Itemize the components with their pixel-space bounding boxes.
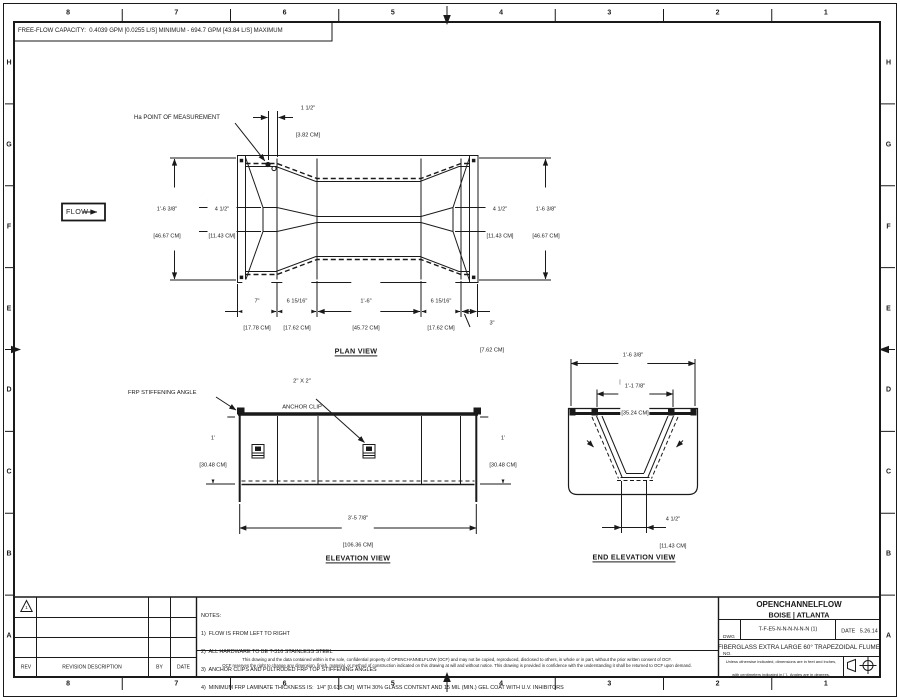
dim-value: 1 1/2"	[296, 105, 320, 114]
dim-elev-height-left: 1' [30.48 CM]	[198, 417, 227, 480]
zone-label: 8	[66, 9, 70, 16]
units-note: Unless otherwise indicated, dimensions a…	[726, 651, 837, 683]
zone-label: D	[6, 387, 11, 394]
anchor-clip-size: 2" X 2"	[282, 377, 322, 386]
note-line: 4) MINIMUM FRP LAMINATE THICKNESS IS: 1/…	[201, 685, 564, 692]
zone-label: 2	[716, 9, 720, 16]
dim-value: 6 15/16"	[283, 298, 310, 307]
rev-header: REV	[21, 665, 31, 670]
dim-value-metric: [7.62 CM]	[480, 347, 504, 356]
dim-plan-left-width: 1'-6 3/8" [46.67 CM]	[152, 188, 181, 251]
dim-plan-left-throat: 4 1/2" [11.43 CM]	[208, 188, 237, 251]
zone-label: 5	[391, 9, 395, 16]
dim-value-metric: [45.72 CM]	[352, 325, 379, 334]
dim-value-metric: [106.36 CM]	[343, 542, 373, 551]
dim-value: 4 1/2"	[660, 516, 687, 525]
by-header: BY	[156, 665, 163, 670]
anchor-clip-label: 2" X 2" ANCHOR CLIP	[282, 360, 322, 420]
dim-end-inner-width: 1'-1 7/8" [35.24 CM]	[620, 365, 649, 428]
dim-value: 1'-1 7/8"	[621, 383, 648, 392]
drawing-linework	[0, 0, 900, 700]
zone-label: D	[886, 387, 891, 394]
zone-label: B	[886, 551, 891, 558]
zone-label: H	[886, 59, 891, 66]
dim-elev-height-right: 1' [30.48 CM]	[488, 417, 517, 480]
dim-value-metric: [11.43 CM]	[487, 233, 514, 242]
flow-label: FLOW	[66, 208, 88, 215]
zone-label: 4	[499, 9, 503, 16]
dim-value: 4 1/2"	[209, 206, 236, 215]
zone-label: H	[6, 59, 11, 66]
note-line: 2) ALL HARDWARE TO BE T-316 STAINLESS ST…	[201, 649, 564, 656]
center-arrow-icons	[5, 6, 895, 692]
dim-value-metric: [17.62 CM]	[283, 325, 310, 334]
zone-label: B	[6, 551, 11, 558]
units-note-line: Unless otherwise indicated, dimensions a…	[726, 659, 837, 665]
dim-plan-len3: 1'-6" [45.72 CM]	[351, 280, 380, 343]
dim-value-metric: [17.62 CM]	[427, 325, 454, 334]
revision-description-header: REVISION DESCRIPTION	[62, 665, 121, 670]
date-value: 5.26.14	[860, 629, 878, 635]
anchor-clip-text: ANCHOR CLIP	[282, 403, 322, 412]
dim-value-metric: [11.43 CM]	[660, 543, 687, 552]
dim-plan-right-throat: 4 1/2" [11.43 CM]	[486, 188, 515, 251]
dim-plan-len1: 7" [17.78 CM]	[242, 280, 271, 343]
dwg-label-line: DWG	[723, 635, 735, 641]
zone-label: 3	[607, 9, 611, 16]
free-flow-capacity-text: FREE-FLOW CAPACITY: 0.4039 GPM [0.0255 L…	[18, 28, 283, 34]
zone-label: 2	[716, 681, 720, 688]
dim-value-metric: [3.82 CM]	[296, 132, 320, 141]
disclaimer-line: OCF reserves the right to change any dim…	[200, 663, 715, 669]
dim-value: 1'-6 3/8"	[619, 352, 646, 361]
notes-block: NOTES: 1) FLOW IS FROM LEFT TO RIGHT 2) …	[201, 602, 564, 698]
zone-label: F	[886, 223, 890, 230]
dim-value: 4 1/2"	[487, 206, 514, 215]
elevation-view-title: ELEVATION VIEW	[326, 554, 391, 561]
date-cell: DATE 5.26.14	[838, 624, 877, 635]
dim-value: 1'-6"	[352, 298, 379, 307]
zone-label: A	[886, 633, 891, 640]
dim-value: 1'-6 3/8"	[532, 206, 559, 215]
zone-label: G	[6, 141, 11, 148]
zone-label: E	[886, 305, 891, 312]
dim-plan-len2: 6 15/16" [17.62 CM]	[282, 280, 311, 343]
zone-label: 1	[824, 9, 828, 16]
dim-plan-gap: 1 1/2" [3.82 CM]	[295, 87, 321, 150]
dim-value-metric: [30.48 CM]	[199, 462, 226, 471]
zone-label: 7	[174, 9, 178, 16]
company-name: OPENCHANNELFLOW	[756, 601, 841, 609]
zone-label: 8	[66, 681, 70, 688]
revision-triangle-number: 1	[25, 605, 28, 610]
dim-value-metric: [46.67 CM]	[153, 233, 180, 242]
ha-point-label: Ha POINT OF MEASUREMENT	[134, 115, 220, 121]
dim-value: 6 15/16"	[427, 298, 454, 307]
dim-value-metric: [30.48 CM]	[489, 462, 516, 471]
zone-label: 6	[283, 9, 287, 16]
dim-value: 1'-6 3/8"	[153, 206, 180, 215]
end-elevation-view-title: END ELEVATION VIEW	[592, 553, 675, 560]
zone-label: 3	[607, 681, 611, 688]
zone-label: E	[7, 305, 12, 312]
zone-label: C	[6, 469, 11, 476]
dim-value: 1'	[489, 435, 516, 444]
notes-heading: NOTES:	[201, 613, 564, 620]
dim-value-metric: [46.67 CM]	[532, 233, 559, 242]
date-label: DATE	[841, 629, 855, 635]
company-locations: BOISE | ATLANTA	[769, 611, 830, 618]
dim-value: 1'	[199, 435, 226, 444]
zone-label: G	[886, 141, 891, 148]
zone-label: A	[6, 633, 11, 640]
third-angle-projection-icon	[848, 657, 877, 674]
frp-stiffening-angle-label: FRP STIFFENING ANGLE	[128, 391, 197, 397]
dim-value-metric: [35.24 CM]	[621, 410, 648, 419]
dim-value: 3"	[480, 320, 504, 329]
dim-elev-length: 3'-5 7/8" [106.36 CM]	[342, 497, 374, 560]
dim-value-metric: [11.43 CM]	[209, 233, 236, 242]
dim-value: 3'-5 7/8"	[343, 515, 373, 524]
dim-value-metric: [17.78 CM]	[243, 325, 270, 334]
sheet-border	[4, 4, 897, 697]
date-header: DATE	[177, 665, 190, 670]
zone-label: F	[7, 223, 11, 230]
note-line: 1) FLOW IS FROM LEFT TO RIGHT	[201, 631, 564, 638]
dim-plan-len4: 6 15/16" [17.62 CM]	[426, 280, 455, 343]
units-note-line: with centimeters indicated in [ ]. Angle…	[726, 673, 837, 679]
disclaimer-block: This drawing and the data contained with…	[200, 657, 715, 669]
dwg-no-value: T-F-E5-N-N-N-N-N-N (1)	[759, 627, 818, 632]
zone-label: 7	[174, 681, 178, 688]
dim-end-bottom-width: 4 1/2" [11.43 CM]	[659, 498, 688, 561]
drawing-sheet: 8877665544332211HHGGFFEEDDCCBBAA FREE-FL…	[0, 0, 900, 700]
dim-plan-len5: 3" [7.62 CM]	[479, 302, 505, 365]
zone-label: C	[886, 469, 891, 476]
dim-plan-right-width: 1'-6 3/8" [46.67 CM]	[531, 188, 560, 251]
plan-view-title: PLAN VIEW	[335, 347, 378, 354]
dim-value: 7"	[243, 298, 270, 307]
